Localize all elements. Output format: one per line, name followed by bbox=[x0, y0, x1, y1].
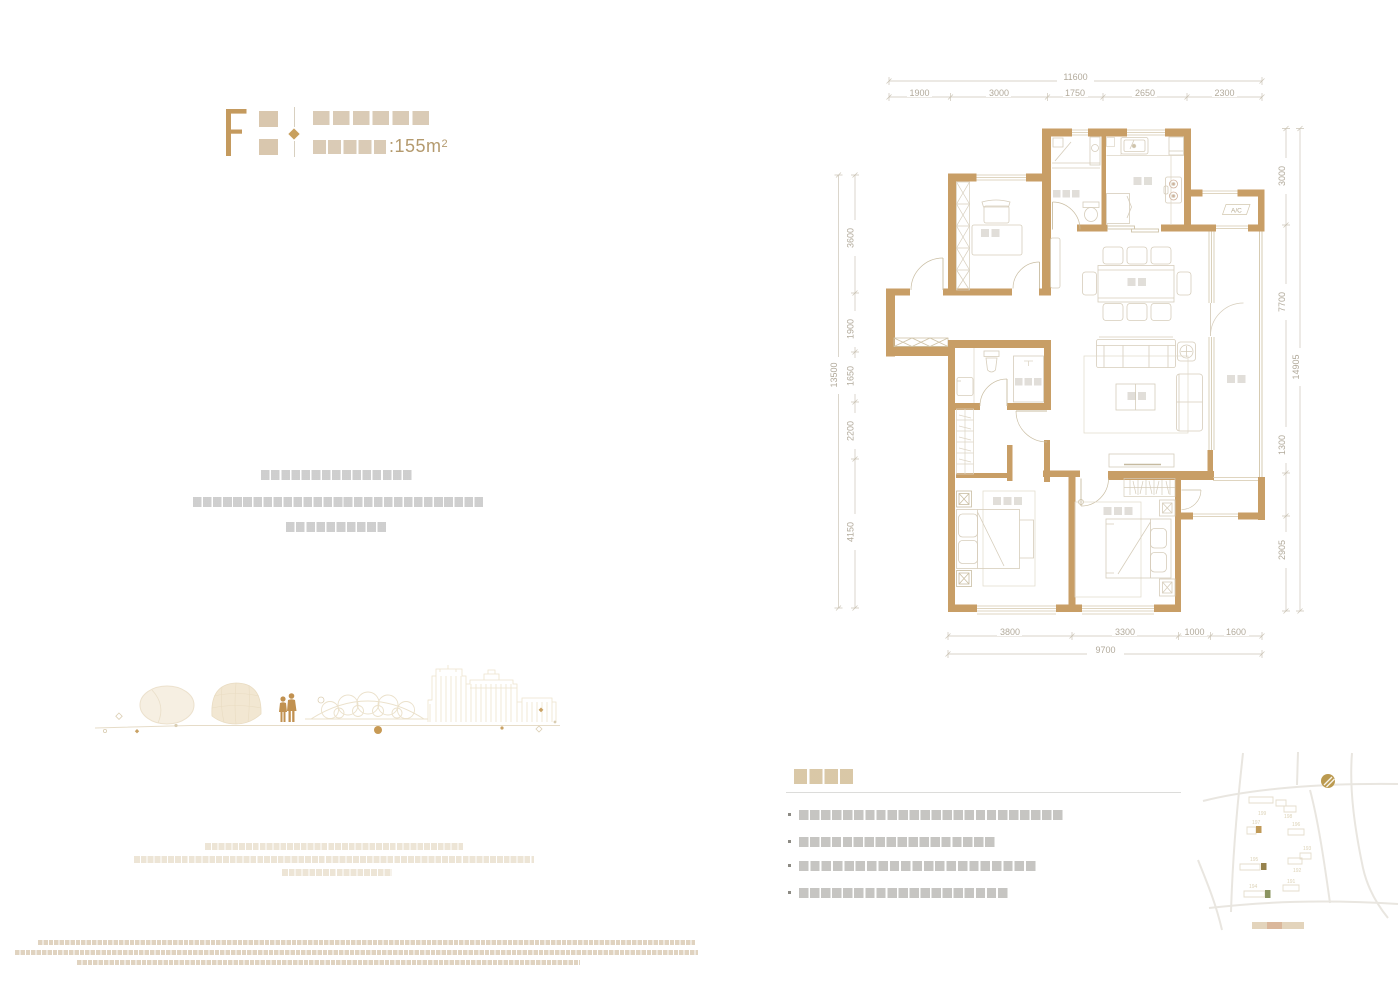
svg-text:3800: 3800 bbox=[1000, 627, 1020, 637]
svg-text:3000: 3000 bbox=[1277, 166, 1287, 186]
svg-text:1900: 1900 bbox=[909, 88, 929, 98]
svg-text:1000: 1000 bbox=[1184, 627, 1204, 637]
svg-text:A/C: A/C bbox=[1231, 208, 1242, 215]
svg-text:3300: 3300 bbox=[1115, 627, 1135, 637]
svg-text:2650: 2650 bbox=[1135, 88, 1155, 98]
svg-text:199: 199 bbox=[1258, 811, 1267, 817]
svg-text:9700: 9700 bbox=[1095, 645, 1115, 655]
svg-text:192: 192 bbox=[1293, 868, 1302, 874]
svg-text:1600: 1600 bbox=[1226, 627, 1246, 637]
svg-text:193: 193 bbox=[1303, 846, 1312, 852]
svg-text:2300: 2300 bbox=[1214, 88, 1234, 98]
svg-text:3600: 3600 bbox=[846, 228, 856, 248]
svg-text:2905: 2905 bbox=[1277, 540, 1287, 560]
svg-text:1750: 1750 bbox=[1065, 88, 1085, 98]
svg-text:3000: 3000 bbox=[989, 88, 1009, 98]
svg-text:197: 197 bbox=[1252, 820, 1261, 826]
svg-text:195: 195 bbox=[1250, 857, 1259, 863]
svg-text:1900: 1900 bbox=[846, 319, 856, 339]
svg-text:194: 194 bbox=[1249, 884, 1258, 890]
svg-text:1650: 1650 bbox=[846, 366, 856, 386]
svg-text:7700: 7700 bbox=[1277, 292, 1287, 312]
svg-text:4150: 4150 bbox=[846, 522, 856, 542]
svg-text:2200: 2200 bbox=[846, 421, 856, 441]
svg-text:191: 191 bbox=[1287, 879, 1296, 885]
svg-text:14905: 14905 bbox=[1291, 354, 1301, 379]
svg-text:11600: 11600 bbox=[1063, 72, 1087, 82]
svg-text:1300: 1300 bbox=[1277, 435, 1287, 455]
svg-text:13500: 13500 bbox=[829, 362, 839, 387]
svg-text:196: 196 bbox=[1292, 822, 1301, 828]
svg-text:198: 198 bbox=[1284, 814, 1293, 820]
